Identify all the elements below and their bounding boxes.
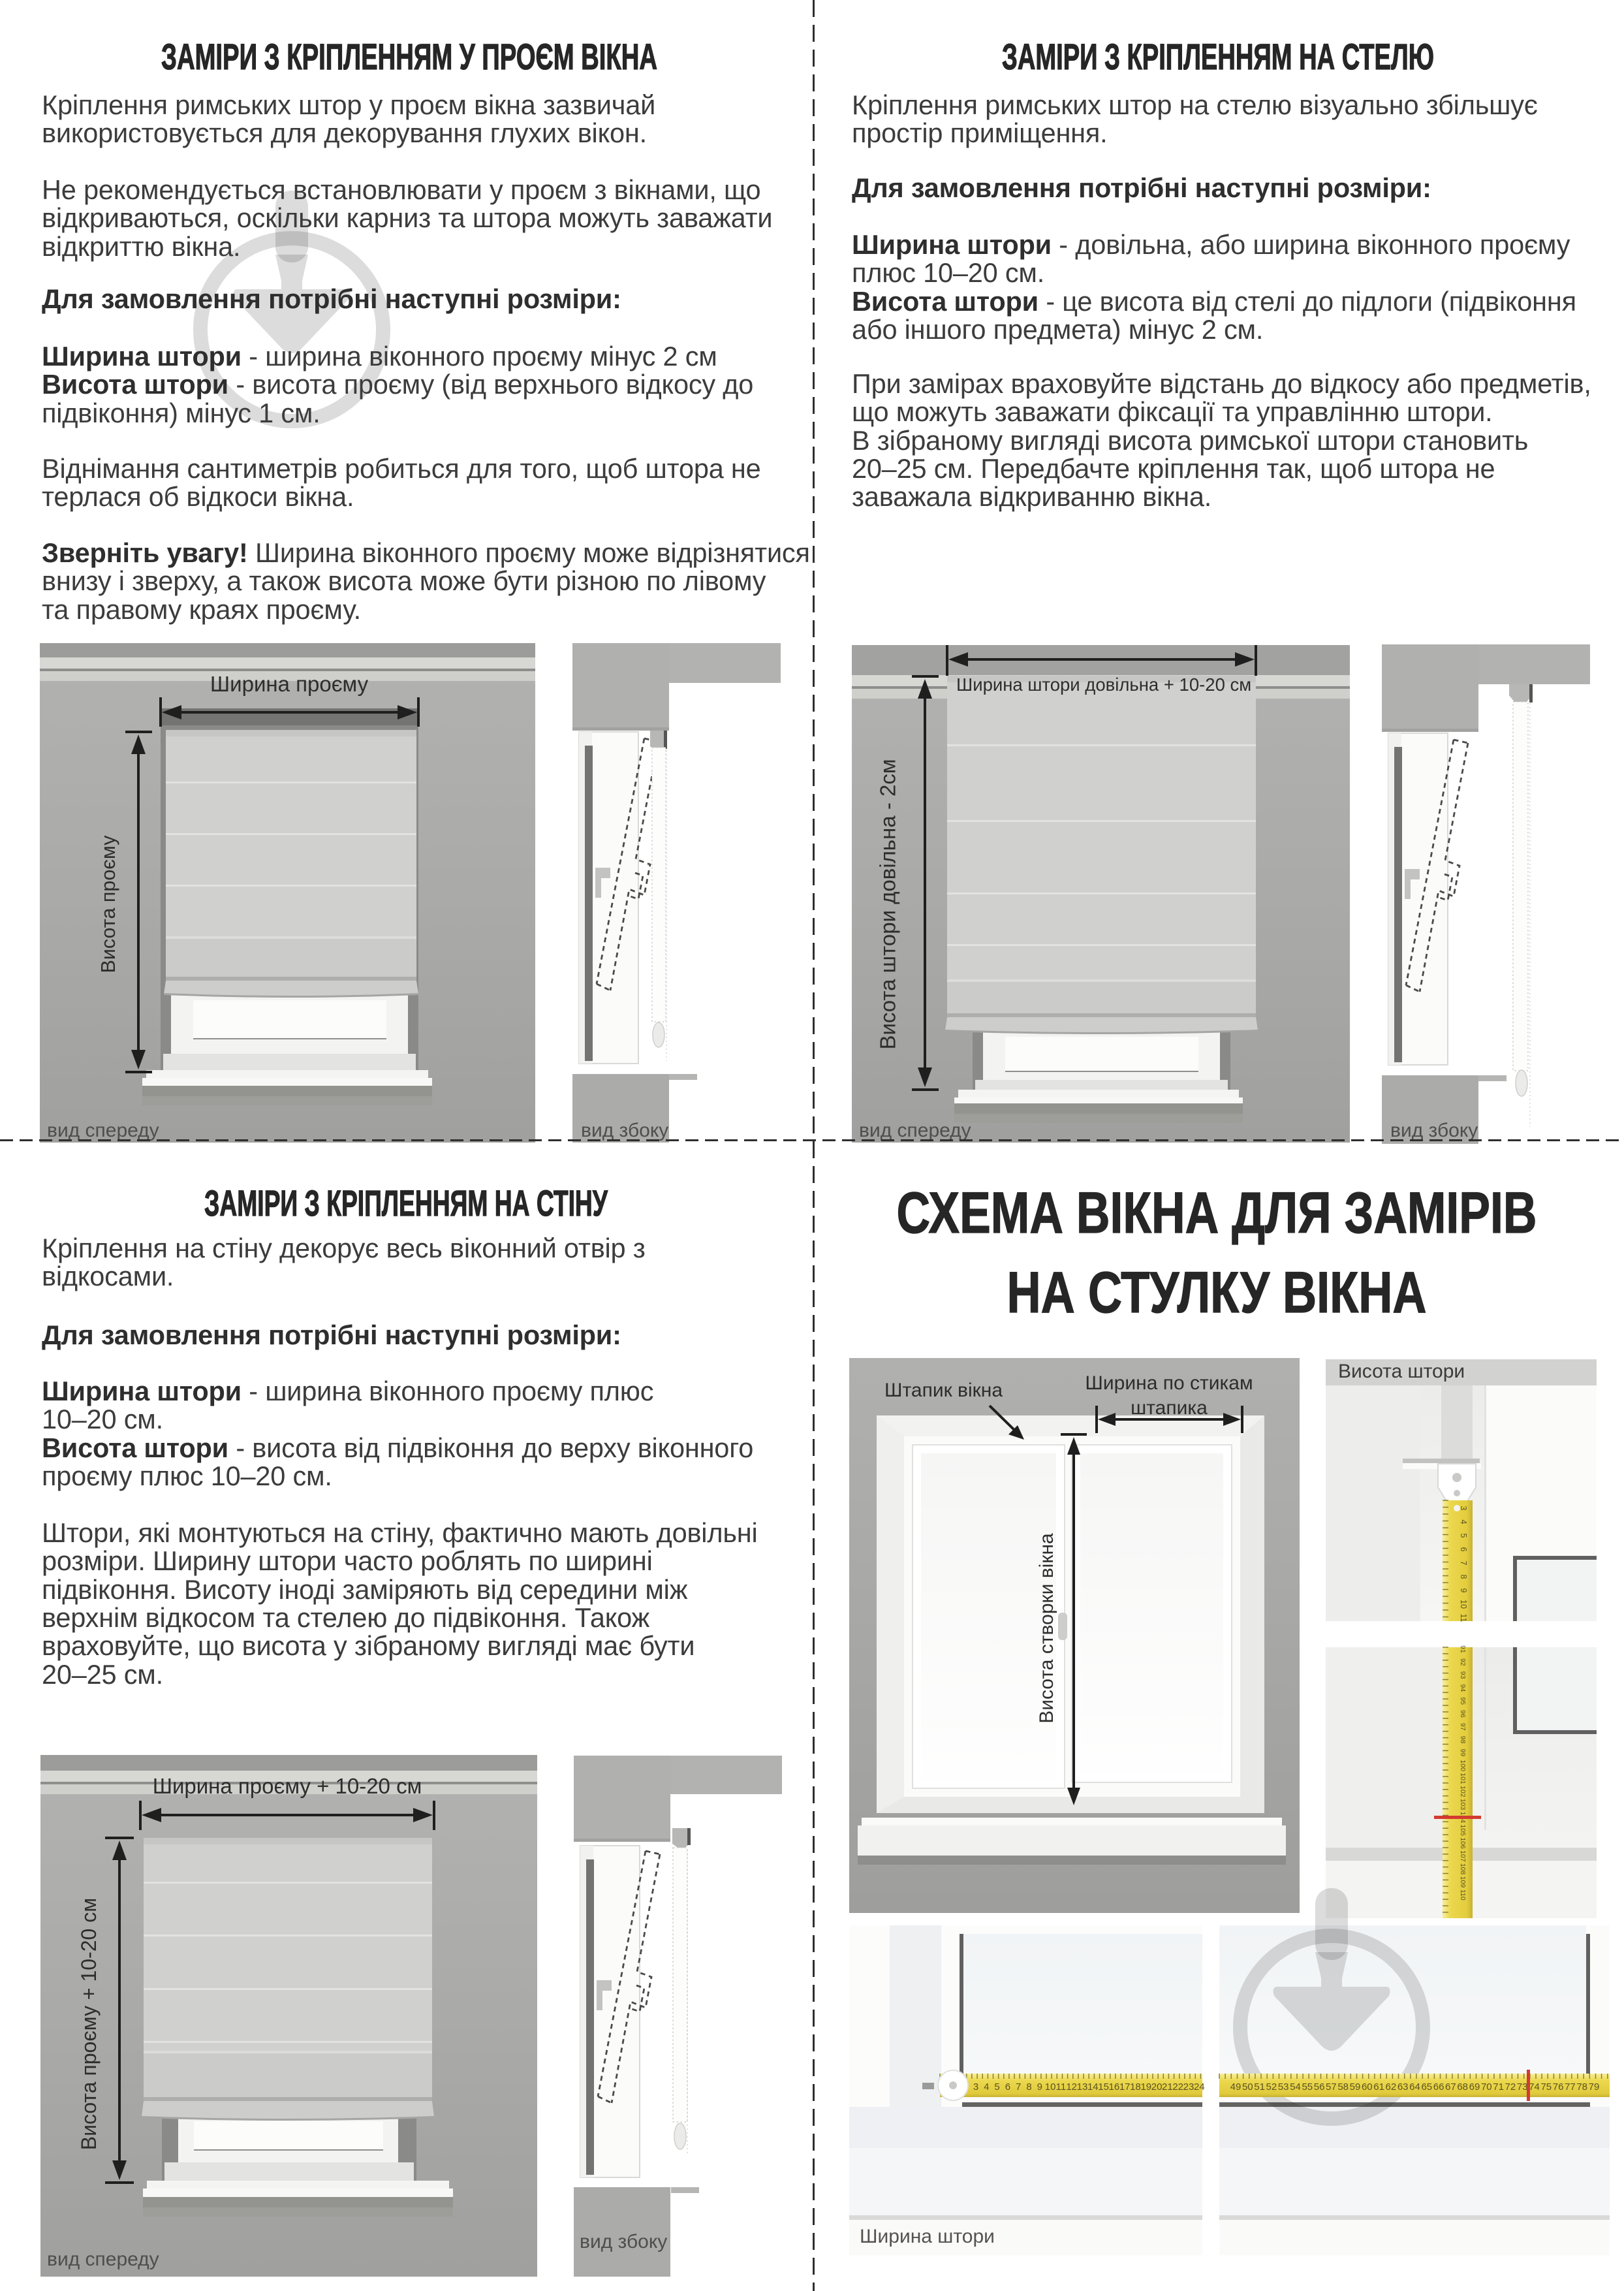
svg-text:51: 51 <box>1254 2081 1265 2093</box>
svg-text:15: 15 <box>1098 2081 1109 2093</box>
svg-text:100: 100 <box>1459 1760 1467 1771</box>
svg-text:19: 19 <box>1140 2081 1151 2093</box>
svg-text:93: 93 <box>1459 1671 1467 1679</box>
svg-text:18: 18 <box>1130 2081 1141 2093</box>
svg-text:10: 10 <box>1459 1600 1468 1609</box>
svg-text:12: 12 <box>1066 2081 1077 2093</box>
svg-text:67: 67 <box>1445 2081 1456 2093</box>
svg-text:75: 75 <box>1540 2081 1552 2093</box>
svg-text:52: 52 <box>1266 2081 1277 2093</box>
svg-text:5: 5 <box>994 2081 999 2093</box>
svg-text:7: 7 <box>1016 2081 1021 2093</box>
svg-text:4: 4 <box>1459 1520 1468 1525</box>
svg-text:14: 14 <box>1087 2081 1099 2093</box>
svg-text:69: 69 <box>1469 2081 1480 2093</box>
svg-text:97: 97 <box>1459 1723 1467 1731</box>
svg-text:3: 3 <box>973 2081 978 2093</box>
svg-text:79: 79 <box>1589 2081 1600 2093</box>
svg-text:10: 10 <box>1045 2081 1056 2093</box>
svg-text:94: 94 <box>1459 1684 1467 1692</box>
svg-text:102: 102 <box>1459 1786 1467 1797</box>
svg-text:98: 98 <box>1459 1736 1467 1744</box>
svg-text:76: 76 <box>1553 2081 1564 2093</box>
svg-text:23: 23 <box>1183 2081 1195 2093</box>
svg-text:24: 24 <box>1194 2081 1205 2093</box>
svg-text:17: 17 <box>1119 2081 1131 2093</box>
svg-text:106: 106 <box>1459 1837 1467 1849</box>
svg-text:21: 21 <box>1162 2081 1173 2093</box>
svg-text:55: 55 <box>1302 2081 1313 2093</box>
svg-text:110: 110 <box>1459 1889 1467 1901</box>
svg-text:61: 61 <box>1373 2081 1384 2093</box>
svg-text:57: 57 <box>1326 2081 1337 2093</box>
svg-text:95: 95 <box>1459 1697 1467 1705</box>
svg-text:3: 3 <box>1459 1506 1468 1511</box>
svg-text:64: 64 <box>1409 2081 1420 2093</box>
svg-text:107: 107 <box>1459 1850 1467 1862</box>
svg-text:13: 13 <box>1077 2081 1088 2093</box>
svg-text:92: 92 <box>1459 1658 1467 1666</box>
svg-text:11: 11 <box>1056 2081 1067 2093</box>
svg-text:56: 56 <box>1314 2081 1325 2093</box>
svg-text:22: 22 <box>1172 2081 1183 2093</box>
svg-text:6: 6 <box>1459 1547 1468 1552</box>
svg-text:101: 101 <box>1459 1773 1467 1784</box>
svg-text:9: 9 <box>1459 1588 1468 1593</box>
svg-text:4: 4 <box>984 2081 989 2093</box>
svg-text:59: 59 <box>1350 2081 1361 2093</box>
svg-text:53: 53 <box>1278 2081 1289 2093</box>
svg-text:7: 7 <box>1459 1561 1468 1566</box>
svg-text:78: 78 <box>1576 2081 1587 2093</box>
svg-text:60: 60 <box>1362 2081 1373 2093</box>
svg-text:50: 50 <box>1242 2081 1253 2093</box>
svg-text:71: 71 <box>1493 2081 1504 2093</box>
svg-text:49: 49 <box>1230 2081 1241 2093</box>
svg-text:91: 91 <box>1459 1645 1467 1653</box>
svg-text:68: 68 <box>1457 2081 1468 2093</box>
svg-text:62: 62 <box>1386 2081 1397 2093</box>
svg-text:8: 8 <box>1026 2081 1031 2093</box>
svg-text:54: 54 <box>1290 2081 1301 2093</box>
svg-text:63: 63 <box>1398 2081 1409 2093</box>
svg-text:74: 74 <box>1529 2081 1540 2093</box>
svg-text:105: 105 <box>1459 1824 1467 1836</box>
svg-text:65: 65 <box>1421 2081 1432 2093</box>
svg-text:8: 8 <box>1459 1575 1468 1579</box>
svg-text:108: 108 <box>1459 1863 1467 1875</box>
svg-text:9: 9 <box>1037 2081 1042 2093</box>
svg-text:77: 77 <box>1565 2081 1576 2093</box>
svg-text:58: 58 <box>1337 2081 1349 2093</box>
svg-text:20: 20 <box>1151 2081 1163 2093</box>
svg-text:96: 96 <box>1459 1710 1467 1718</box>
svg-text:16: 16 <box>1109 2081 1120 2093</box>
svg-text:66: 66 <box>1433 2081 1444 2093</box>
svg-text:6: 6 <box>1005 2081 1010 2093</box>
svg-text:11: 11 <box>1459 1614 1468 1622</box>
svg-text:103: 103 <box>1459 1799 1467 1810</box>
svg-text:5: 5 <box>1459 1534 1468 1538</box>
svg-text:72: 72 <box>1505 2081 1516 2093</box>
svg-text:109: 109 <box>1459 1876 1467 1888</box>
svg-text:70: 70 <box>1481 2081 1492 2093</box>
svg-text:99: 99 <box>1459 1749 1467 1757</box>
svg-text:73: 73 <box>1517 2081 1528 2093</box>
